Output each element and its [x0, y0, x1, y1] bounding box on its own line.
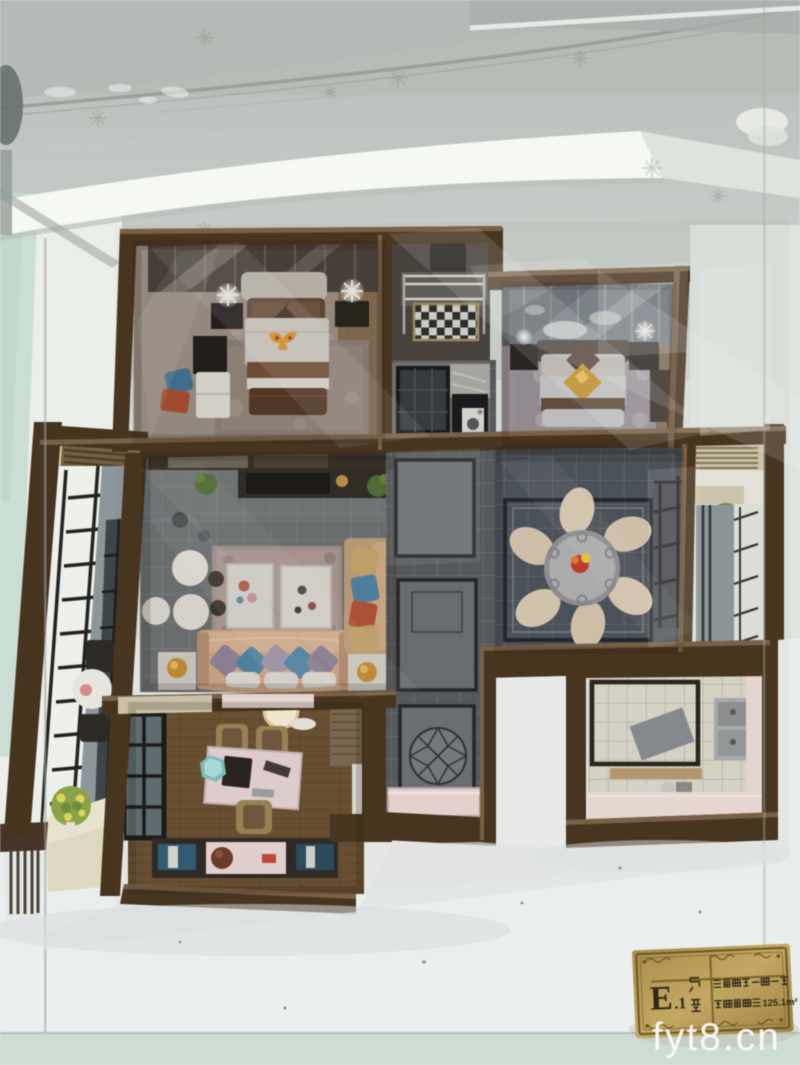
svg-text:E: E [649, 980, 673, 1018]
svg-text:.1: .1 [674, 995, 687, 1013]
svg-text:125.1m²: 125.1m² [762, 997, 798, 1010]
svg-text:fyt8.cn: fyt8.cn [652, 1016, 781, 1059]
